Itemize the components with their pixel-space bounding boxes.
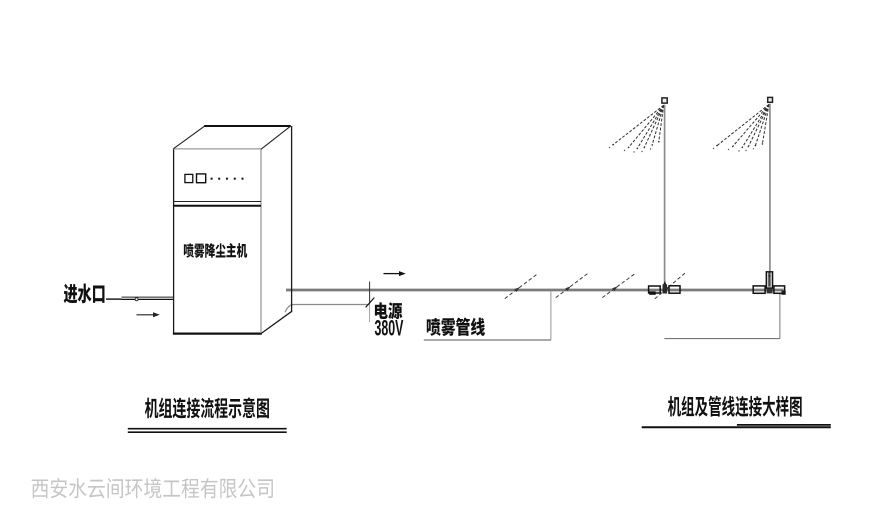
svg-text:380V: 380V — [375, 316, 404, 341]
